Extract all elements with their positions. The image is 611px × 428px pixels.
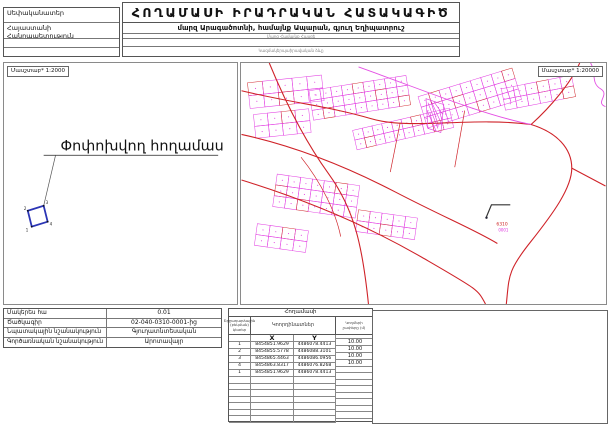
x-value: 8454863.8317	[251, 363, 294, 369]
point-number-cell	[229, 384, 251, 390]
plot-outline	[28, 206, 48, 227]
coord-row: 28454855.57784486088.3101	[229, 349, 336, 356]
coords-table-header: Շրջադարձային (բեկման) կետեր Կոորդինատներ…	[229, 317, 372, 335]
point-number: 4	[229, 363, 251, 369]
point-number-cell	[229, 416, 251, 422]
info-value: Գյուղատնտեսական	[107, 328, 221, 337]
y-cell	[294, 410, 336, 416]
side-length: 10.00	[336, 360, 374, 367]
y-cell	[294, 416, 336, 422]
info-row: Մակերես հա0.01	[4, 309, 221, 319]
side-length: 10.00	[336, 353, 374, 360]
svg-text:1: 1	[26, 228, 29, 233]
plot-vertex-numbers: 2 3 4 1	[24, 200, 53, 233]
y-cell	[294, 397, 336, 403]
info-row: Նպատակային նշանակությունԳյուղատնտեսական	[4, 328, 221, 338]
sides-column-header: Կողմերի չափերը (մ)	[336, 317, 372, 334]
point-number: 3	[229, 356, 251, 362]
info-row: Գործառնական նշանակությունԱրոտավայր	[4, 338, 221, 348]
x-cell	[251, 416, 294, 422]
info-label: Նպատակային նշանակություն	[4, 328, 107, 337]
point-number-cell	[229, 390, 251, 396]
points-column-header: Շրջադարձային (բեկման) կետեր	[229, 317, 251, 334]
header-empty-row	[123, 39, 459, 47]
x-value: 8454851.9629	[251, 370, 294, 376]
y-value: 4486086.0956	[294, 356, 336, 362]
info-value: Արոտավայր	[107, 338, 221, 348]
owner-label: Սեփականատեր	[4, 8, 119, 23]
x-value: 8454851.9629	[251, 342, 294, 348]
x-header: X	[251, 335, 294, 341]
cadastral-map-panel: Մասշտաբ* 1:20000 6310 0001	[240, 62, 607, 305]
map-code-magenta: 0001	[498, 228, 509, 233]
target-plot-marker	[485, 205, 510, 219]
x-value: 8454865.4463	[251, 356, 294, 362]
coords-column-header: Կոորդինատներ	[251, 317, 336, 334]
owner-box: Սեփականատեր Հայաստանի Հանրապետություն	[3, 7, 120, 57]
owner-value: Հայաստանի Հանրապետություն	[4, 23, 119, 39]
cadastral-map: 6310 0001	[241, 63, 606, 304]
map-roads	[242, 63, 606, 304]
plot-info-table: Մակերես հա0.01Ծածկագիր02-040-0310-0001-ի…	[3, 308, 222, 348]
point-number-cell	[229, 410, 251, 416]
info-label: Մակերես հա	[4, 309, 107, 318]
info-label: Ծածկագիր	[4, 319, 107, 328]
y-value: 4486078.4413	[294, 342, 336, 348]
svg-text:3: 3	[46, 200, 49, 205]
x-cell	[251, 384, 294, 390]
address-line: մարզ Արագածոտնի, համայնք Ապարան, գյուղ Ե…	[123, 23, 459, 34]
y-cell	[294, 377, 336, 383]
title-box: ՀՈՂԱՄԱՍԻ ԻՐԱԴՐԱԿԱՆ ՀԱՏԱԿԱԳԻԾ մարզ Արագած…	[122, 2, 460, 57]
y-value: 4486088.3101	[294, 349, 336, 355]
scale-label-right: Մասշտաբ* 1:20000	[538, 66, 603, 77]
scale-label-left: Մասշտաբ* 1:2000	[7, 66, 69, 77]
y-value: 4486076.8268	[294, 363, 336, 369]
empty-coord-row	[229, 416, 336, 423]
coords-table-title: Հողամասի	[229, 309, 372, 317]
point-number-cell	[229, 397, 251, 403]
x-cell	[251, 377, 294, 383]
hatched-area	[426, 99, 444, 133]
y-cell	[294, 390, 336, 396]
plot-label: Փոփոխվող հողամաս	[61, 138, 224, 154]
side-length: 10.00	[336, 339, 374, 346]
leader-line	[44, 155, 56, 206]
coord-row: 18454851.96294486078.4413	[229, 342, 336, 349]
info-value: 0.01	[107, 309, 221, 318]
document-title: ՀՈՂԱՄԱՍԻ ԻՐԱԴՐԱԿԱՆ ՀԱՏԱԿԱԳԻԾ	[123, 3, 459, 23]
point-number-cell	[229, 403, 251, 409]
x-cell	[251, 390, 294, 396]
x-cell	[251, 403, 294, 409]
owner-empty-row	[4, 48, 119, 57]
x-cell	[251, 397, 294, 403]
coord-row: 48454863.83174486076.8268	[229, 363, 336, 370]
x-value: 8454855.5778	[251, 349, 294, 355]
plot-sketch-panel: Մասշտաբ* 1:2000 Փոփոխվող հողամաս 2 3 4 1	[3, 62, 238, 305]
coordinates-table: Հողամասի Շրջադարձային (բեկման) կետեր Կոո…	[228, 308, 373, 422]
coord-row: 18454851.96294486078.4413	[229, 370, 336, 377]
svg-text:4: 4	[50, 222, 53, 227]
point-number: 1	[229, 370, 251, 376]
point-number-cell	[229, 377, 251, 383]
side-length: 10.00	[336, 346, 374, 353]
info-row: Ծածկագիր02-040-0310-0001-ից	[4, 319, 221, 329]
point-number-cell	[229, 335, 251, 341]
plot-sketch: Փոփոխվող հողամաս 2 3 4 1	[4, 63, 237, 304]
xy-header-row: XY	[229, 335, 336, 342]
x-cell	[251, 410, 294, 416]
info-value: 02-040-0310-0001-ից	[107, 319, 221, 328]
y-cell	[294, 403, 336, 409]
empty-frame	[372, 310, 608, 424]
parcel-blocks	[247, 68, 575, 252]
y-header: Y	[294, 335, 336, 341]
empty-side-cell	[336, 412, 374, 419]
point-number: 2	[229, 349, 251, 355]
svg-text:2: 2	[24, 206, 27, 211]
y-cell	[294, 384, 336, 390]
coord-row: 38454865.44634486086.0956	[229, 356, 336, 363]
org-caption: Կազմակերպաիրավական ձևը	[123, 47, 459, 56]
coords-table-body: XY18454851.96294486078.441328454855.5778…	[229, 335, 372, 421]
info-label: Գործառնական նշանակություն	[4, 338, 107, 348]
owner-empty-row	[4, 39, 119, 48]
y-value: 4486078.4413	[294, 370, 336, 376]
point-number: 1	[229, 342, 251, 348]
